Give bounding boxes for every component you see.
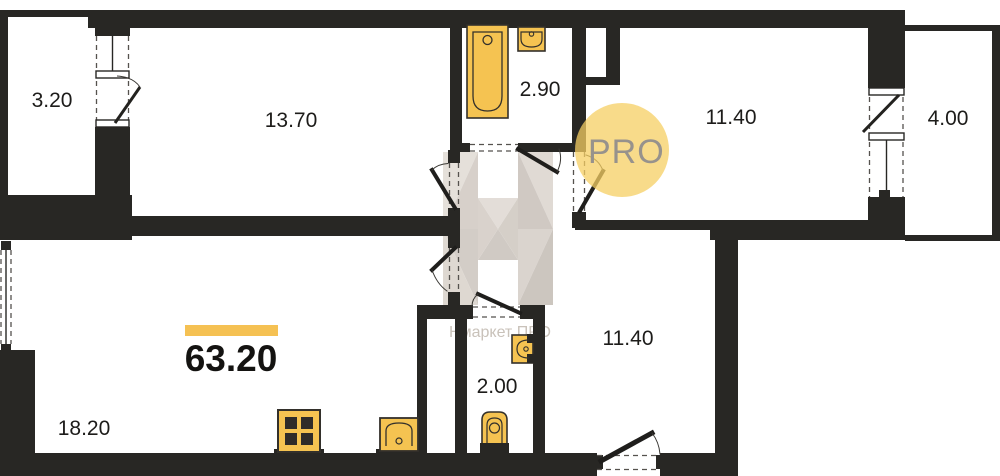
kitchen-sink-icon [376, 418, 422, 456]
total-area-accent-bar [185, 325, 278, 336]
room-label-living-room: 13.70 [265, 109, 318, 132]
stove-icon [274, 410, 324, 457]
room-label-bathroom: 2.90 [520, 78, 561, 101]
wc-door [472, 294, 520, 313]
total-area: 63.20 [185, 325, 278, 379]
total-area-value: 63.20 [185, 338, 278, 379]
bathroom-sink-icon [518, 27, 545, 51]
pro-logo-text: PRO [588, 133, 665, 171]
room-label-balcony-right: 4.00 [928, 107, 969, 130]
toilet-icon [480, 412, 509, 455]
bathtub-icon [467, 25, 508, 118]
balcony-right-window [863, 88, 904, 190]
floor-plan: Нмаркет ПРО [0, 0, 1000, 476]
room-label-bedroom: 11.40 [706, 106, 757, 129]
room-label-hallway: 11.40 [603, 327, 654, 350]
room-label-balcony-left: 3.20 [32, 89, 73, 112]
balcony-left-window [96, 36, 140, 127]
entrance-door [601, 433, 660, 461]
pro-logo: PRO [575, 103, 669, 197]
floor-plan-canvas: Нмаркет ПРО [0, 0, 1000, 476]
room-label-wc: 2.00 [477, 375, 518, 398]
wc-sink-icon [512, 334, 535, 363]
room-label-kitchen: 18.20 [58, 417, 111, 440]
